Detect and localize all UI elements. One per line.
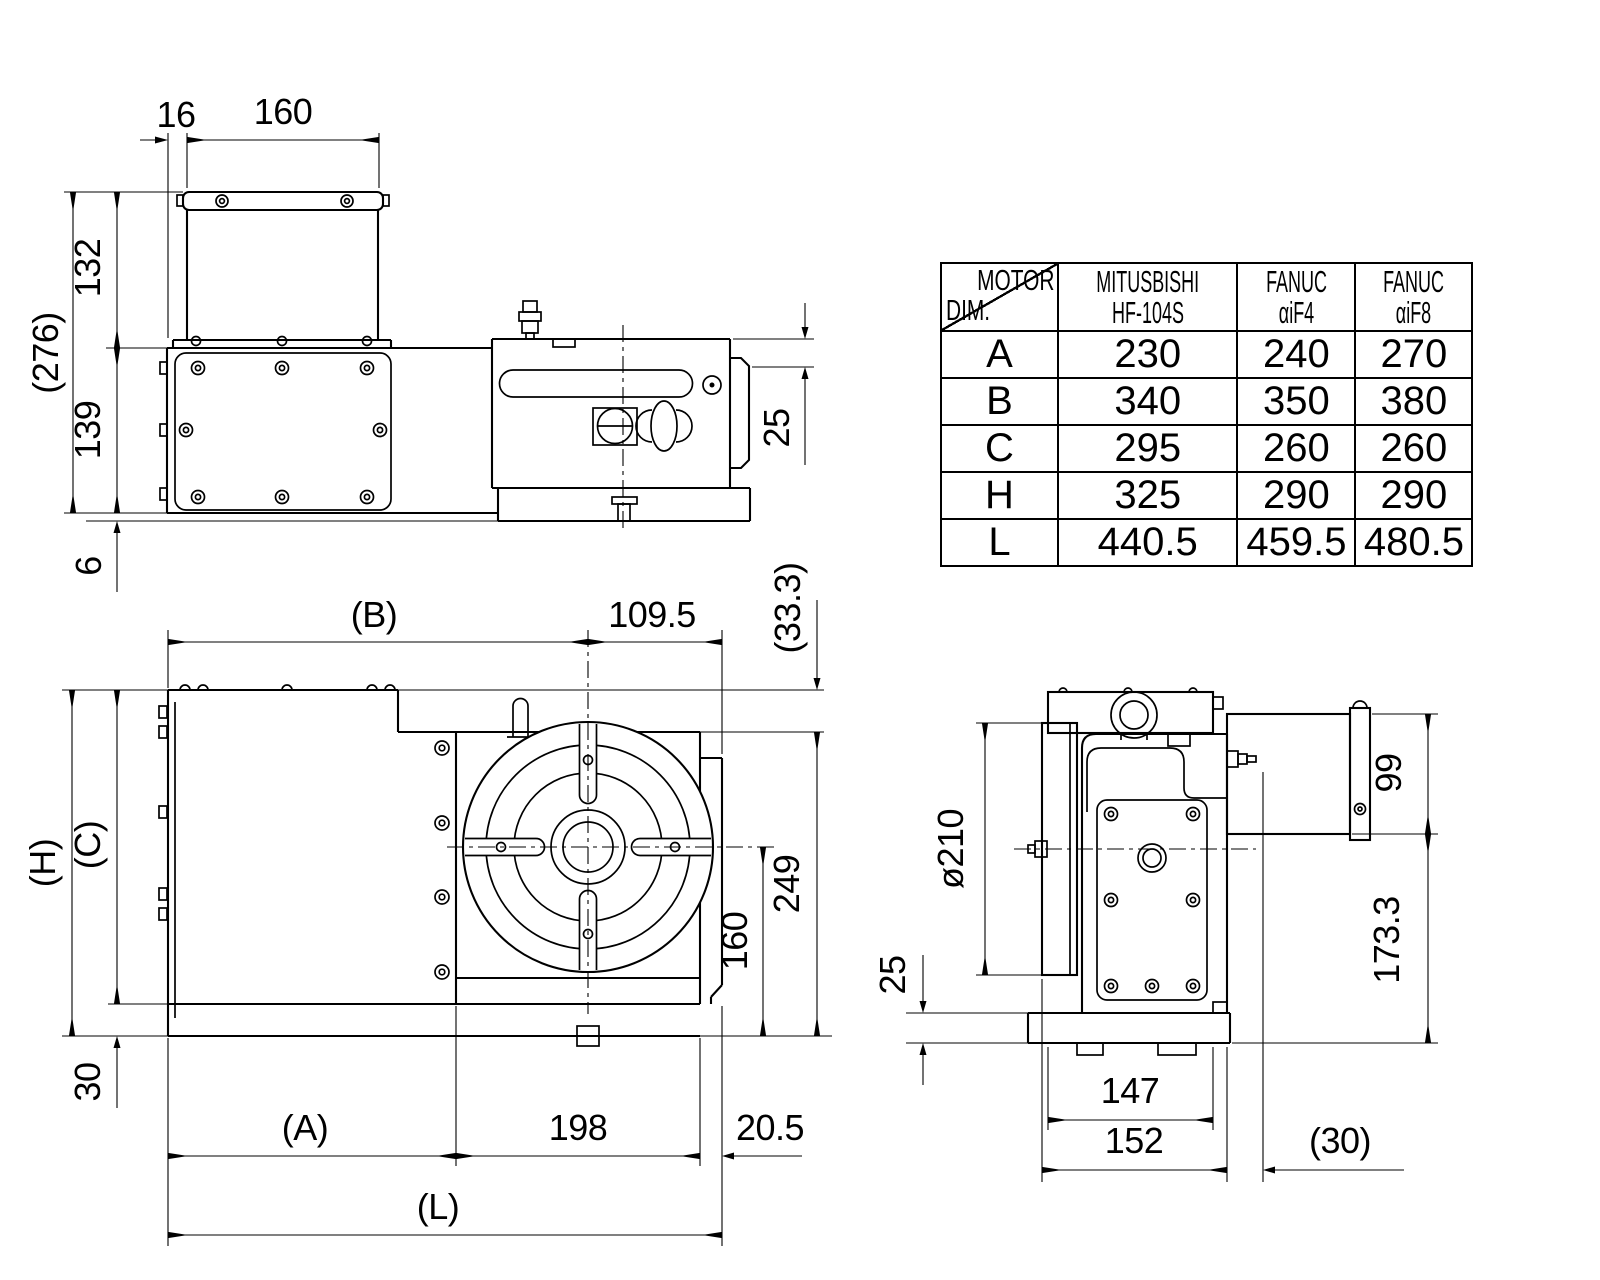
row-dim-B: B <box>941 378 1058 425</box>
dim-label-B: (B) <box>351 594 398 635</box>
dim-label-H: (H) <box>22 839 63 887</box>
dim-label-A: (A) <box>282 1107 329 1148</box>
grease-fitting-icon <box>519 301 541 339</box>
cell-C-1: 260 <box>1237 425 1355 472</box>
spec-table: MOTOR DIM. MITUSBISHI HF-104S FANUC αiF4… <box>940 262 1473 567</box>
table-row: B 340 350 380 <box>941 378 1472 425</box>
cell-H-1: 290 <box>1237 472 1355 519</box>
dim-label-L: (L) <box>417 1186 460 1227</box>
dim-label-33_3: (33.3) <box>767 562 808 653</box>
dim-label-160-front: 160 <box>714 912 755 971</box>
dim-label-276: (276) <box>25 312 66 394</box>
cell-A-1: 240 <box>1237 331 1355 378</box>
side-view-dimensions: ø210 25 99 173.3 147 152 (30) <box>872 714 1438 1182</box>
cover-screws <box>180 362 387 504</box>
cell-B-0: 340 <box>1058 378 1237 425</box>
cell-C-2: 260 <box>1355 425 1472 472</box>
dim-label-152: 152 <box>1105 1120 1164 1161</box>
table-corner-cell: MOTOR DIM. <box>941 263 1058 331</box>
col-header-fanuc-aif8: FANUC αiF8 <box>1355 263 1472 331</box>
cell-H-2: 290 <box>1355 472 1472 519</box>
corner-dim-label: DIM. <box>946 295 990 328</box>
dim-label-C: (C) <box>67 821 108 869</box>
screw-icon <box>216 195 353 207</box>
table-row: A 230 240 270 <box>941 331 1472 378</box>
col-header-fanuc-aif4: FANUC αiF4 <box>1237 263 1355 331</box>
dim-label-147: 147 <box>1101 1070 1160 1111</box>
corner-motor-label: MOTOR <box>977 265 1054 298</box>
dim-label-99: 99 <box>1368 753 1409 792</box>
cell-H-0: 325 <box>1058 472 1237 519</box>
front-view-dimensions: (B) 109.5 (33.3) 249 160 (H) (C) 30 (A) … <box>22 562 832 1246</box>
dim-label-25-top: 25 <box>756 408 797 447</box>
cell-A-0: 230 <box>1058 331 1237 378</box>
front-view-geometry <box>159 630 778 1046</box>
motor-dimension-table: MOTOR DIM. MITUSBISHI HF-104S FANUC αiF4… <box>940 262 1473 567</box>
cad-drawing-sheet: 16 160 (276) 132 139 6 25 <box>0 0 1600 1280</box>
side-screws <box>435 741 449 979</box>
dim-label-139: 139 <box>67 401 108 460</box>
cell-L-2: 480.5 <box>1355 519 1472 566</box>
dim-label-249: 249 <box>766 855 807 914</box>
dim-label-132: 132 <box>67 239 108 298</box>
dim-label-25-side: 25 <box>872 955 913 994</box>
cover-screws-side <box>1105 808 1200 993</box>
row-dim-L: L <box>941 519 1058 566</box>
table-row: L 440.5 459.5 480.5 <box>941 519 1472 566</box>
dim-label-198: 198 <box>549 1107 608 1148</box>
top-view-dimensions: 16 160 (276) 132 139 6 25 <box>25 91 814 592</box>
row-dim-A: A <box>941 331 1058 378</box>
cell-B-1: 350 <box>1237 378 1355 425</box>
table-row: C 295 260 260 <box>941 425 1472 472</box>
dim-label-6: 6 <box>68 556 109 576</box>
cell-B-2: 380 <box>1355 378 1472 425</box>
dim-label-20_5: 20.5 <box>736 1107 804 1148</box>
drawing-canvas: 16 160 (276) 132 139 6 25 <box>0 0 1600 1280</box>
row-dim-C: C <box>941 425 1058 472</box>
cell-L-1: 459.5 <box>1237 519 1355 566</box>
dim-label-16: 16 <box>156 94 195 135</box>
dim-label-30: 30 <box>67 1062 108 1101</box>
table-row: H 325 290 290 <box>941 472 1472 519</box>
dim-label-109_5: 109.5 <box>608 594 696 635</box>
dim-label-30-side: (30) <box>1309 1120 1371 1161</box>
side-view-geometry <box>1014 688 1370 1055</box>
top-view-geometry <box>160 192 750 532</box>
row-dim-H: H <box>941 472 1058 519</box>
cell-A-2: 270 <box>1355 331 1472 378</box>
dim-label-173_3: 173.3 <box>1366 896 1407 984</box>
dim-label-160-top: 160 <box>254 91 313 132</box>
cell-C-0: 295 <box>1058 425 1237 472</box>
grease-nipple-icon <box>1227 751 1256 767</box>
dim-label-dia210: ø210 <box>930 809 971 889</box>
cell-L-0: 440.5 <box>1058 519 1237 566</box>
col-header-mitsubishi: MITUSBISHI HF-104S <box>1058 263 1237 331</box>
